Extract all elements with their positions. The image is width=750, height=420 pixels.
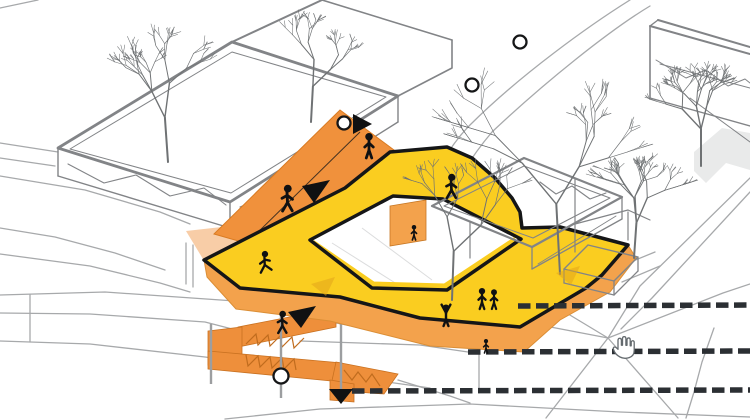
- tree-branch: [303, 12, 307, 19]
- wall-edge: [58, 176, 230, 228]
- tree-branch: [293, 35, 302, 45]
- tree-branch: [683, 83, 690, 92]
- box-edge: [650, 26, 750, 54]
- tree-branch: [172, 32, 181, 35]
- tree-branch: [447, 217, 454, 251]
- terrain-line: [0, 176, 190, 224]
- tree-branch: [700, 72, 701, 80]
- terrain-line: [608, 284, 750, 338]
- terrain-line: [0, 0, 38, 8]
- figure-head: [279, 311, 286, 318]
- tree-branch: [336, 39, 339, 46]
- tree-branch: [684, 94, 696, 107]
- tree-branch: [280, 22, 286, 28]
- tree-branch: [636, 198, 647, 223]
- tree-branch: [651, 162, 654, 167]
- node-circle-upper: [466, 79, 479, 92]
- tree-branch: [648, 167, 651, 173]
- tree-branch: [508, 183, 523, 188]
- tree-branch: [619, 163, 624, 167]
- terrain-line: [0, 292, 235, 301]
- tree-branch: [334, 29, 335, 35]
- tree-branch: [583, 106, 584, 113]
- tree-branch: [595, 95, 604, 112]
- tree-branch: [593, 117, 601, 125]
- curved-path-line: [463, 6, 650, 172]
- tree-branch: [135, 40, 138, 47]
- tree-branch: [148, 32, 154, 36]
- tree-branch: [359, 43, 363, 48]
- tree-branch: [591, 93, 601, 110]
- terrain-curve-bottom: [225, 404, 750, 419]
- tree-branch: [330, 59, 342, 70]
- tree-branch: [705, 62, 708, 68]
- back-roof-beam: [398, 40, 452, 96]
- tree-branch: [507, 167, 513, 176]
- tree-branch: [150, 62, 155, 73]
- terrain-line: [0, 143, 58, 152]
- tree-branch: [647, 181, 648, 198]
- tree-branch: [308, 12, 310, 18]
- tree-branch: [296, 30, 301, 44]
- tree-branch: [165, 118, 168, 162]
- tree-branch: [313, 59, 314, 86]
- back-roof-beam: [322, 0, 452, 40]
- tree-branch: [647, 190, 664, 198]
- tree-branch: [335, 43, 338, 55]
- bare-tree-icon: [107, 24, 217, 162]
- tree-branch: [340, 33, 341, 38]
- tree-branch: [140, 63, 150, 73]
- figure-head: [443, 304, 450, 311]
- tree-branch: [595, 97, 606, 112]
- tree-branch: [657, 171, 664, 177]
- tree-branch: [621, 129, 629, 142]
- tree-branch: [648, 167, 653, 173]
- tree-branch: [343, 50, 351, 59]
- tree-branch: [308, 42, 314, 59]
- cursor-layer: [613, 337, 634, 359]
- terrain-line: [0, 254, 190, 292]
- tree-branch: [725, 66, 730, 72]
- tree-branch: [691, 63, 695, 68]
- tree-branch: [336, 30, 337, 36]
- tree-branch: [146, 62, 150, 73]
- tree-branch: [676, 184, 684, 187]
- tree-branch: [695, 63, 698, 68]
- tree-branch: [649, 163, 650, 167]
- tree-branch: [151, 24, 154, 34]
- tree-branch: [330, 55, 338, 70]
- tree-branch: [118, 60, 126, 68]
- tree-branch: [123, 45, 125, 54]
- tree-branch: [646, 159, 651, 163]
- tree-branch: [165, 34, 172, 43]
- section-zigzag: [656, 60, 750, 86]
- tree-branch: [608, 152, 627, 158]
- figure-head: [479, 288, 485, 294]
- tree-branch: [567, 113, 577, 116]
- section-dashed-line-2: [468, 351, 750, 352]
- tree-branch: [350, 34, 352, 40]
- tree-branch: [467, 127, 495, 135]
- tree-branch: [507, 176, 508, 189]
- tree-branch: [581, 103, 582, 112]
- tree-branch: [481, 90, 484, 108]
- tree-branch: [522, 177, 532, 183]
- tree-branch: [591, 110, 594, 136]
- tree-branch: [335, 31, 336, 36]
- tree-branch: [628, 147, 643, 152]
- tree-branch: [194, 45, 204, 53]
- tree-branch: [481, 109, 495, 136]
- tree-branch: [674, 73, 677, 82]
- tree-branch: [334, 35, 335, 43]
- tree-branch: [675, 82, 683, 92]
- tree-branch: [590, 83, 595, 93]
- figure-head: [484, 339, 488, 343]
- tree-branch: [686, 67, 691, 70]
- figure-head: [284, 185, 292, 193]
- node-circle-ramp-top: [338, 117, 351, 130]
- tree-branch: [302, 45, 315, 60]
- tree-branch: [484, 82, 494, 90]
- tree-branch: [159, 35, 164, 44]
- tree-branch: [165, 83, 170, 117]
- tree-branch: [481, 71, 488, 84]
- tree-branch: [701, 107, 707, 129]
- tree-branch: [615, 158, 619, 164]
- bare-tree-icon: [280, 10, 364, 122]
- tree-branch: [450, 103, 457, 113]
- figure-limb: [287, 192, 288, 202]
- terrain-line: [0, 313, 236, 330]
- axonometric-diagram-canvas[interactable]: [0, 0, 750, 420]
- tree-branch: [667, 165, 670, 170]
- tree-branch: [296, 15, 297, 21]
- tree-branch: [635, 181, 644, 197]
- tree-branch: [204, 36, 205, 46]
- tree-branch: [204, 42, 213, 46]
- tree-branch: [652, 86, 657, 89]
- box-edge: [658, 20, 750, 47]
- tree-branch: [583, 106, 586, 113]
- tree-branch: [165, 44, 167, 60]
- tree-branch: [682, 93, 683, 110]
- tree-branch: [454, 225, 481, 251]
- terrain-layer: [0, 0, 750, 419]
- tree-branch: [194, 49, 204, 53]
- tree-branch: [721, 66, 724, 71]
- tree-branch: [457, 113, 469, 128]
- figure-head: [412, 225, 417, 230]
- tree-branch: [314, 13, 316, 20]
- tree-branch: [152, 92, 165, 118]
- tree-branch: [285, 27, 292, 34]
- hand-cursor: [613, 337, 634, 359]
- terrain-path-curve: [686, 328, 714, 418]
- box-edge: [650, 20, 658, 26]
- tree-branch: [340, 37, 345, 39]
- tree-branch: [634, 223, 636, 258]
- tree-branch: [657, 83, 658, 88]
- diagram-stage: [0, 0, 750, 420]
- figure-head: [365, 133, 373, 141]
- courtyard-orange-panel: [390, 200, 426, 246]
- terrain-line: [0, 158, 55, 166]
- tree-branch: [586, 125, 587, 142]
- figure-head: [448, 174, 455, 181]
- tree-branch: [464, 98, 482, 108]
- tree-branch: [608, 142, 621, 158]
- section-dashed-line-3: [352, 390, 750, 391]
- tree-branch: [649, 156, 653, 160]
- tree-branch: [670, 170, 671, 179]
- tree-branch: [594, 112, 595, 136]
- tree-branch: [139, 74, 152, 91]
- tree-branch: [311, 86, 313, 122]
- node-circle-stairs: [274, 369, 289, 384]
- tree-branch: [165, 60, 170, 84]
- tree-branch: [595, 177, 607, 180]
- tree-branch: [670, 164, 673, 171]
- terrain-line: [0, 228, 165, 270]
- node-circle-top: [514, 36, 527, 49]
- tree-branch: [672, 167, 676, 172]
- tree-branch: [495, 136, 522, 164]
- figure-head: [491, 289, 497, 295]
- tree-branch: [625, 184, 635, 198]
- tree-branch: [621, 131, 631, 141]
- tree-branch: [289, 20, 293, 25]
- tree-branch: [481, 68, 484, 85]
- tree-branch: [461, 117, 462, 128]
- tree-branch: [285, 21, 286, 28]
- tree-branch: [490, 159, 491, 170]
- tree-branch: [454, 90, 464, 98]
- tree-branch: [457, 84, 464, 98]
- tree-branch: [127, 36, 131, 45]
